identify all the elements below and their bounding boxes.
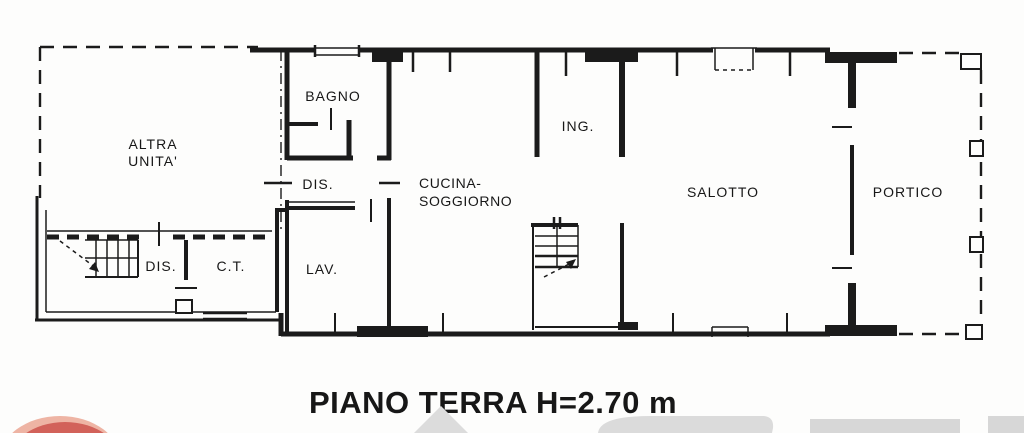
room-label-dis-upper: DIS. <box>302 176 333 192</box>
watermark-gray-blob <box>598 416 773 433</box>
watermark-gray-bar-1 <box>810 419 960 433</box>
portico-pillars <box>961 54 983 339</box>
room-label-portico: PORTICO <box>873 184 944 200</box>
window-top-salotto <box>711 45 757 70</box>
room-label-salotto: SALOTTO <box>687 184 759 200</box>
room-label-ct: C.T. <box>217 258 246 274</box>
central-stairs <box>531 217 638 330</box>
room-label-altra-unita-1: ALTRA <box>128 136 177 152</box>
room-label-bagno: BAGNO <box>305 88 361 104</box>
room-label-cucina-2: SOGGIORNO <box>419 193 512 209</box>
plan-title: PIANO TERRA H=2.70 m <box>309 385 677 420</box>
window-top-bagno <box>314 44 360 57</box>
room-label-ing: ING. <box>562 118 595 134</box>
room-label-cucina-1: CUCINA- <box>419 175 482 191</box>
room-label-dis-lower: DIS. <box>145 258 176 274</box>
boundary-dashed-lines <box>40 47 981 334</box>
room-bagno-walls <box>287 51 403 160</box>
room-label-altra-unita-2: UNITA' <box>128 153 178 169</box>
scanned-floor-plan-page: ALTRA UNITA' BAGNO DIS. CUCINA- SOGGIORN… <box>0 0 1024 433</box>
room-label-lav: LAV. <box>306 261 338 277</box>
lower-left-stairs <box>60 240 138 277</box>
floor-plan-drawing: ALTRA UNITA' BAGNO DIS. CUCINA- SOGGIORN… <box>0 0 1024 433</box>
room-ing-walls <box>537 51 638 157</box>
watermark-gray-bar-2 <box>988 416 1024 433</box>
